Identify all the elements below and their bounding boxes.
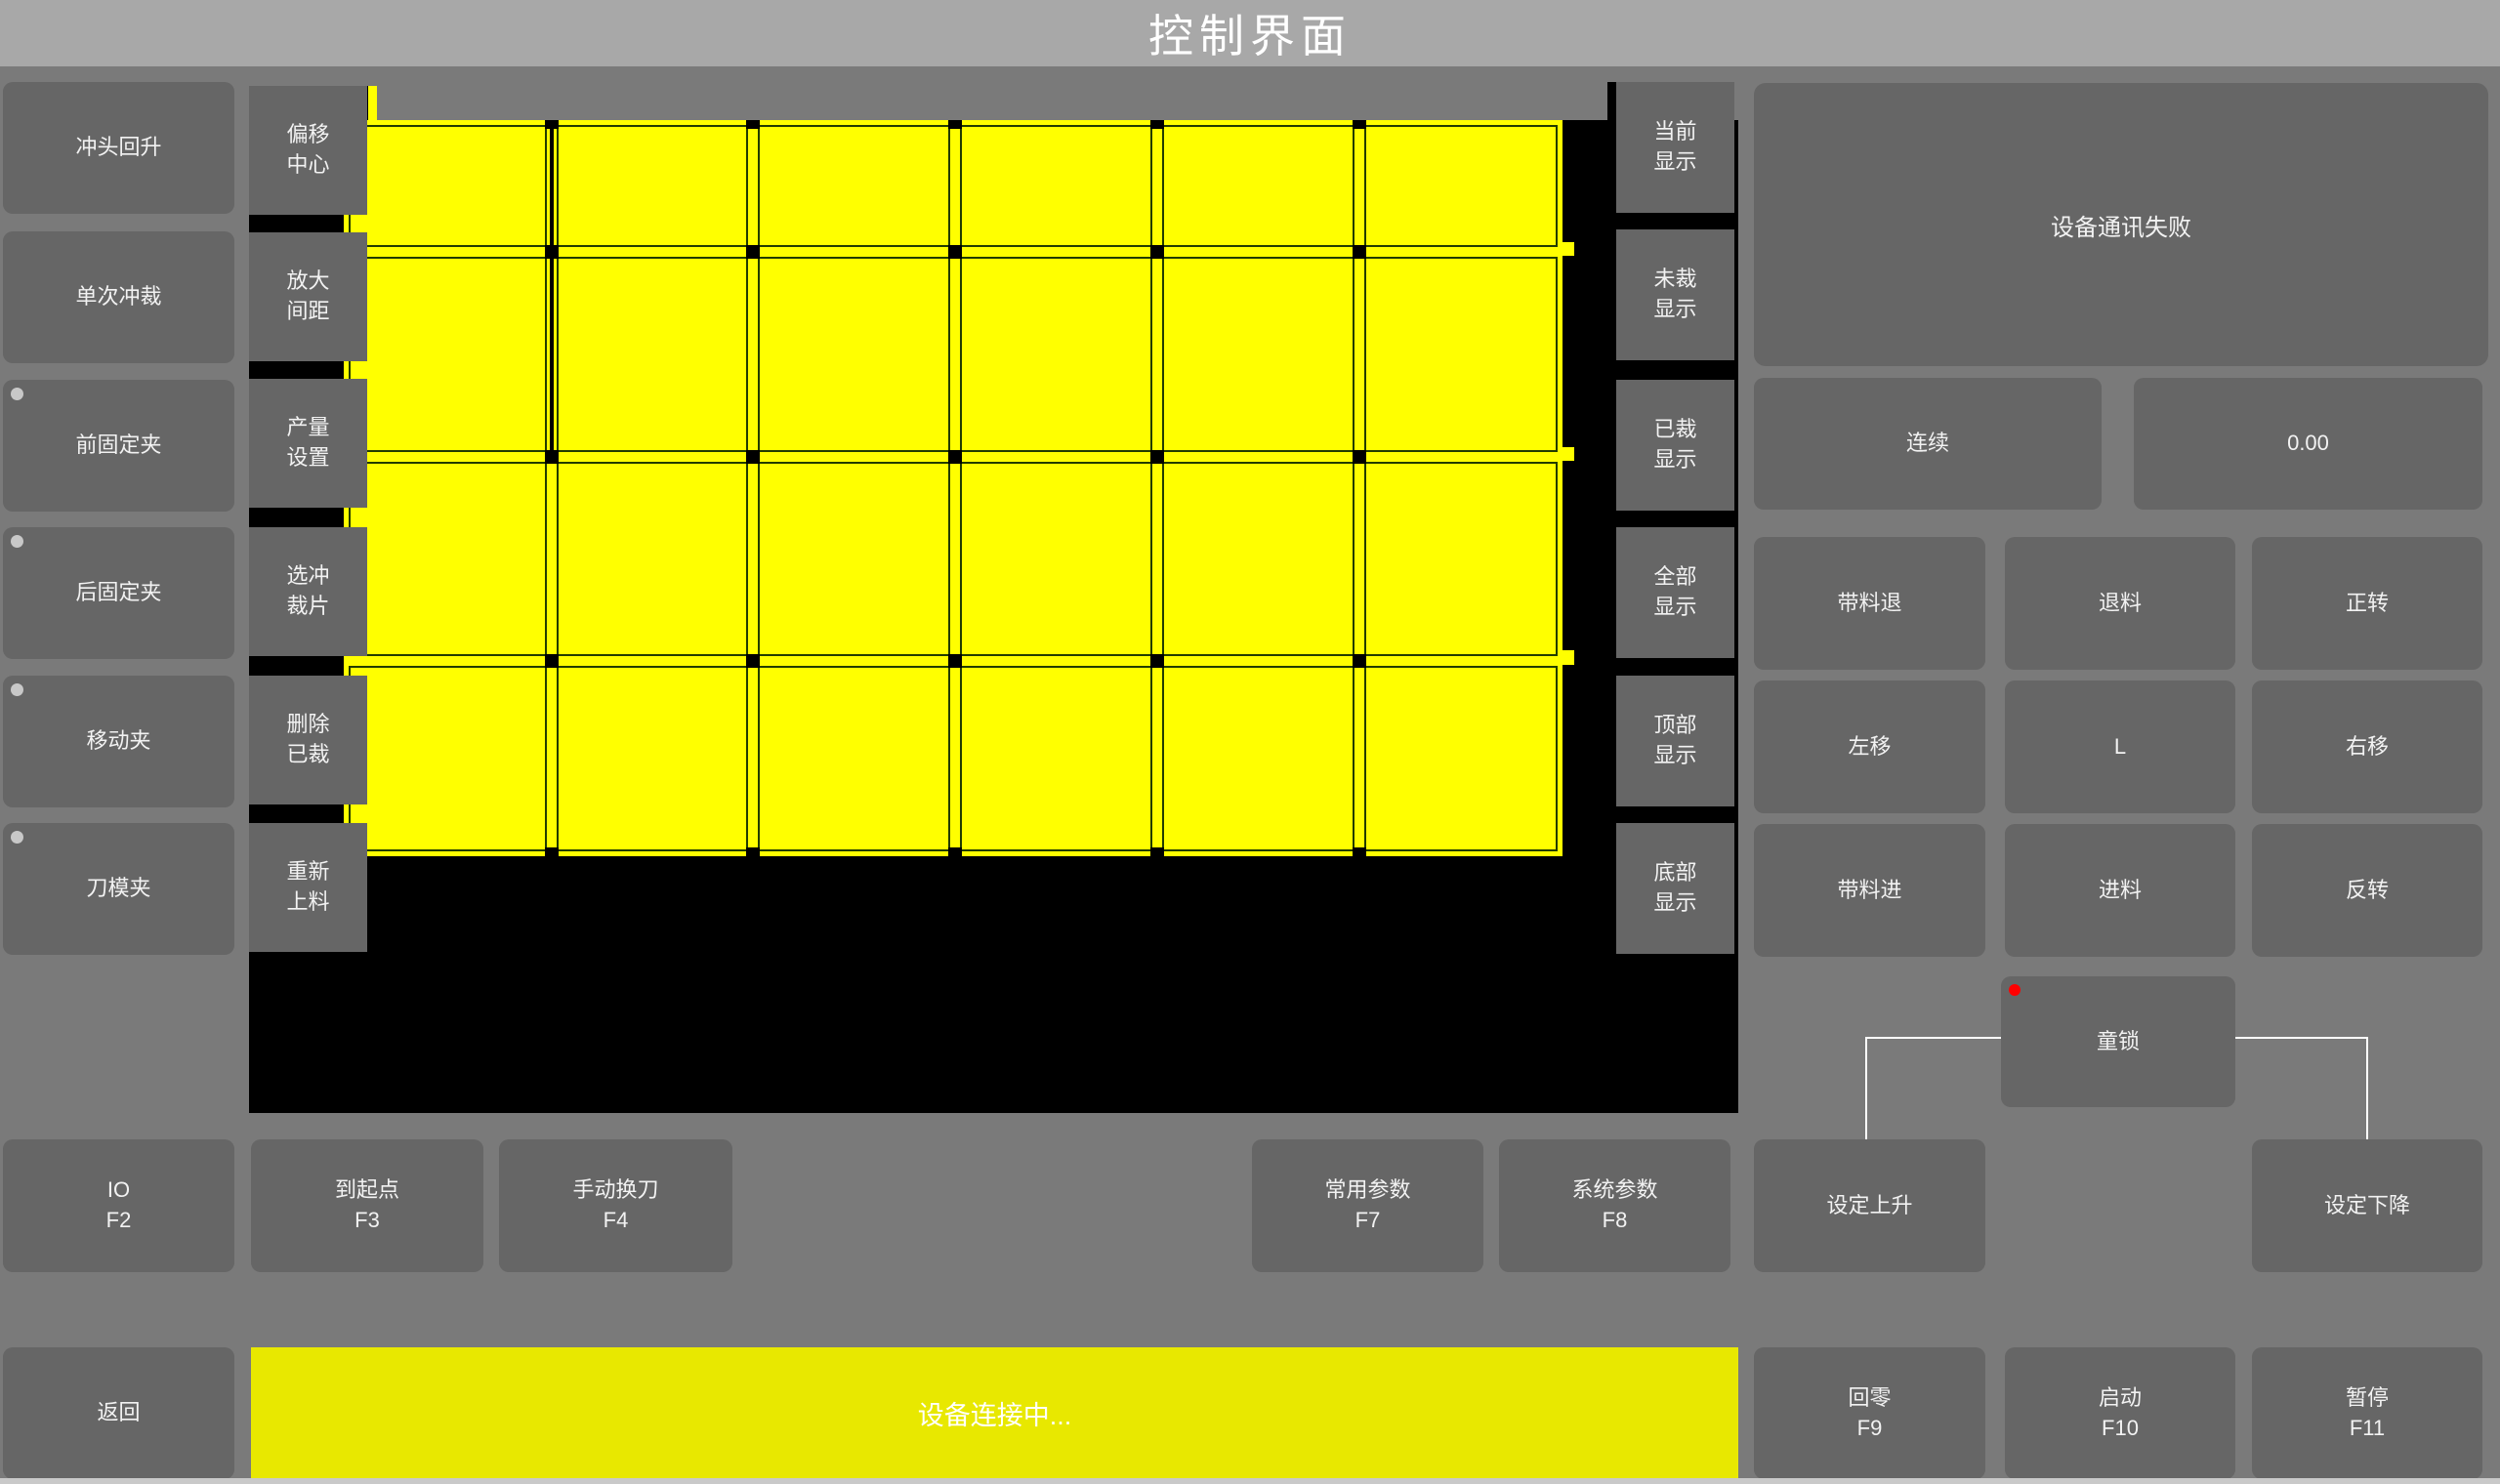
view-uncut-button[interactable]: 未裁 显示 bbox=[1616, 229, 1734, 360]
cut-notch bbox=[1150, 245, 1164, 259]
fkey-label: 系统参数 bbox=[1571, 1175, 1657, 1206]
cut-notch bbox=[1353, 245, 1366, 259]
title-bar: 控制界面 bbox=[0, 0, 2500, 66]
piece-cell[interactable] bbox=[1162, 666, 1354, 851]
cut-notch bbox=[1353, 847, 1366, 856]
set-rise-button[interactable]: 设定上升 bbox=[1754, 1139, 1985, 1272]
value-display: 0.00 bbox=[2134, 378, 2482, 510]
button-label: 前固定夹 bbox=[75, 431, 161, 461]
connector-line bbox=[2235, 1037, 2367, 1039]
continuous-mode-button[interactable]: 连续 bbox=[1754, 378, 2102, 510]
fkey-key: F10 bbox=[2102, 1414, 2139, 1444]
to-origin-f3-button[interactable]: 到起点F3 bbox=[251, 1139, 483, 1272]
child-lock-indicator-light bbox=[2009, 984, 2021, 996]
cut-notch bbox=[1150, 654, 1164, 668]
fkey-label: 暂停 bbox=[2346, 1383, 2389, 1414]
select-piece-button[interactable]: 选冲 裁片 bbox=[249, 527, 367, 656]
piece-cell[interactable] bbox=[557, 666, 748, 851]
piece-cell[interactable] bbox=[960, 666, 1152, 851]
piece-cell[interactable] bbox=[1364, 257, 1558, 452]
piece-cell[interactable] bbox=[960, 257, 1152, 452]
cut-notch bbox=[746, 245, 760, 259]
sheet-edge-tab-yellow bbox=[368, 86, 377, 120]
home-f9-button[interactable]: 回零F9 bbox=[1754, 1347, 1985, 1479]
clamp-indicator-light bbox=[11, 831, 23, 844]
piece-cell[interactable] bbox=[960, 462, 1152, 656]
cut-notch bbox=[948, 120, 962, 129]
cut-notch bbox=[545, 847, 559, 856]
set-fall-button[interactable]: 设定下降 bbox=[2252, 1139, 2482, 1272]
single-punch-button[interactable]: 单次冲裁 bbox=[3, 231, 234, 363]
enlarge-spacing-button[interactable]: 放大 间距 bbox=[249, 232, 367, 361]
cut-notch bbox=[948, 847, 962, 856]
cut-notch bbox=[1353, 654, 1366, 668]
status-text: 设备连接中... bbox=[918, 1394, 1072, 1432]
output-settings-button[interactable]: 产量 设置 bbox=[249, 379, 367, 508]
moving-clamp-button[interactable]: 移动夹 bbox=[3, 676, 234, 807]
l-key-button[interactable]: L bbox=[2005, 680, 2235, 813]
fkey-key: F3 bbox=[354, 1206, 380, 1236]
piece-cell[interactable] bbox=[960, 125, 1152, 247]
system-params-f8-button[interactable]: 系统参数F8 bbox=[1499, 1139, 1730, 1272]
piece-cell[interactable] bbox=[1364, 666, 1558, 851]
fkey-label: 启动 bbox=[2099, 1383, 2142, 1414]
piece-cell[interactable] bbox=[349, 666, 547, 851]
connector-line bbox=[2366, 1037, 2368, 1140]
cut-notch bbox=[746, 120, 760, 129]
move-left-button[interactable]: 左移 bbox=[1754, 680, 1985, 813]
view-cut-button[interactable]: 已裁 显示 bbox=[1616, 380, 1734, 511]
piece-cell[interactable] bbox=[349, 125, 547, 247]
fkey-key: F2 bbox=[106, 1206, 132, 1236]
cut-notch bbox=[948, 245, 962, 259]
piece-cell[interactable] bbox=[758, 257, 950, 452]
fkey-key: F11 bbox=[2350, 1414, 2385, 1444]
pieces-grid bbox=[344, 120, 1562, 856]
fkey-label: 回零 bbox=[1848, 1383, 1891, 1414]
io-f2-button[interactable]: IOF2 bbox=[3, 1139, 234, 1272]
fkey-key: F7 bbox=[1355, 1206, 1381, 1236]
bottom-edge-strip bbox=[0, 1478, 2500, 1484]
piece-cell[interactable] bbox=[758, 666, 950, 851]
connector-line bbox=[1865, 1037, 2001, 1039]
cut-notch bbox=[1150, 847, 1164, 856]
button-label: 刀模夹 bbox=[86, 874, 150, 904]
piece-cell[interactable] bbox=[349, 462, 547, 656]
rotate-reverse-button[interactable]: 反转 bbox=[2252, 824, 2482, 957]
canvas-top-mask-left bbox=[377, 86, 1607, 120]
view-all-button[interactable]: 全部 显示 bbox=[1616, 527, 1734, 658]
row-gap-tab bbox=[1562, 447, 1574, 461]
piece-cell[interactable] bbox=[1162, 125, 1354, 247]
comm-status-text: 设备通讯失败 bbox=[2051, 208, 2191, 242]
die-clamp-button[interactable]: 刀模夹 bbox=[3, 823, 234, 955]
offset-center-button[interactable]: 偏移 中心 bbox=[249, 86, 367, 215]
cut-notch bbox=[1150, 450, 1164, 464]
back-button[interactable]: 返回 bbox=[3, 1347, 234, 1479]
start-f10-button[interactable]: 启动F10 bbox=[2005, 1347, 2235, 1479]
punch-up-button[interactable]: 冲头回升 bbox=[3, 82, 234, 214]
reload-material-button[interactable]: 重新 上料 bbox=[249, 823, 367, 952]
cut-seam-line bbox=[550, 120, 554, 457]
piece-cell[interactable] bbox=[557, 125, 748, 247]
cut-notch bbox=[1353, 120, 1366, 129]
piece-cell[interactable] bbox=[349, 257, 547, 452]
piece-cell[interactable] bbox=[758, 462, 950, 656]
piece-cell[interactable] bbox=[1162, 462, 1354, 656]
cut-notch bbox=[746, 450, 760, 464]
fkey-key: F4 bbox=[604, 1206, 629, 1236]
rear-clamp-button[interactable]: 后固定夹 bbox=[3, 527, 234, 659]
clamp-indicator-light bbox=[11, 388, 23, 400]
connector-line bbox=[1865, 1037, 1867, 1140]
piece-cell[interactable] bbox=[557, 462, 748, 656]
rotate-forward-button[interactable]: 正转 bbox=[2252, 537, 2482, 670]
piece-cell[interactable] bbox=[557, 257, 748, 452]
piece-cell[interactable] bbox=[758, 125, 950, 247]
clamp-indicator-light bbox=[11, 683, 23, 696]
row-gap-tab bbox=[1562, 650, 1574, 665]
delete-cut-button[interactable]: 删除 已裁 bbox=[249, 676, 367, 804]
cut-notch bbox=[746, 654, 760, 668]
fkey-label: 到起点 bbox=[335, 1175, 399, 1206]
fkey-key: F9 bbox=[1857, 1414, 1883, 1444]
pause-f11-button[interactable]: 暂停F11 bbox=[2252, 1347, 2482, 1479]
fkey-key: F8 bbox=[1603, 1206, 1628, 1236]
sheet-edge-tab-black bbox=[1607, 82, 1616, 120]
cut-notch bbox=[948, 654, 962, 668]
piece-cell[interactable] bbox=[1162, 257, 1354, 452]
piece-cell[interactable] bbox=[1364, 125, 1558, 247]
view-bottom-button[interactable]: 底部 显示 bbox=[1616, 823, 1734, 954]
cut-notch bbox=[746, 847, 760, 856]
row-gap-tab bbox=[1562, 242, 1574, 256]
cut-notch bbox=[545, 654, 559, 668]
comm-status-message: 设备通讯失败 bbox=[1754, 83, 2488, 366]
page-title: 控制界面 bbox=[1148, 1, 1352, 65]
button-label: 移动夹 bbox=[86, 726, 150, 757]
button-label: 童锁 bbox=[2097, 1027, 2140, 1057]
material-back-button[interactable]: 退料 bbox=[2005, 537, 2235, 670]
fkey-label: IO bbox=[107, 1175, 130, 1206]
move-right-button[interactable]: 右移 bbox=[2252, 680, 2482, 813]
common-params-f7-button[interactable]: 常用参数F7 bbox=[1252, 1139, 1483, 1272]
cut-notch bbox=[948, 450, 962, 464]
view-current-button[interactable]: 当前 显示 bbox=[1616, 82, 1734, 213]
status-bar: 设备连接中... bbox=[251, 1347, 1738, 1479]
feed-in-with-material-button[interactable]: 带料进 bbox=[1754, 824, 1985, 957]
manual-tool-change-f4-button[interactable]: 手动换刀F4 bbox=[499, 1139, 732, 1272]
fkey-label: 常用参数 bbox=[1324, 1175, 1410, 1206]
front-clamp-button[interactable]: 前固定夹 bbox=[3, 380, 234, 512]
child-lock-button[interactable]: 童锁 bbox=[2001, 976, 2235, 1107]
cut-notch bbox=[1353, 450, 1366, 464]
material-feed-button[interactable]: 进料 bbox=[2005, 824, 2235, 957]
clamp-indicator-light bbox=[11, 535, 23, 548]
button-label: 后固定夹 bbox=[75, 578, 161, 608]
feed-back-with-material-button[interactable]: 带料退 bbox=[1754, 537, 1985, 670]
fkey-label: 手动换刀 bbox=[572, 1175, 658, 1206]
cut-notch bbox=[1150, 120, 1164, 129]
piece-cell[interactable] bbox=[1364, 462, 1558, 656]
view-top-button[interactable]: 顶部 显示 bbox=[1616, 676, 1734, 806]
